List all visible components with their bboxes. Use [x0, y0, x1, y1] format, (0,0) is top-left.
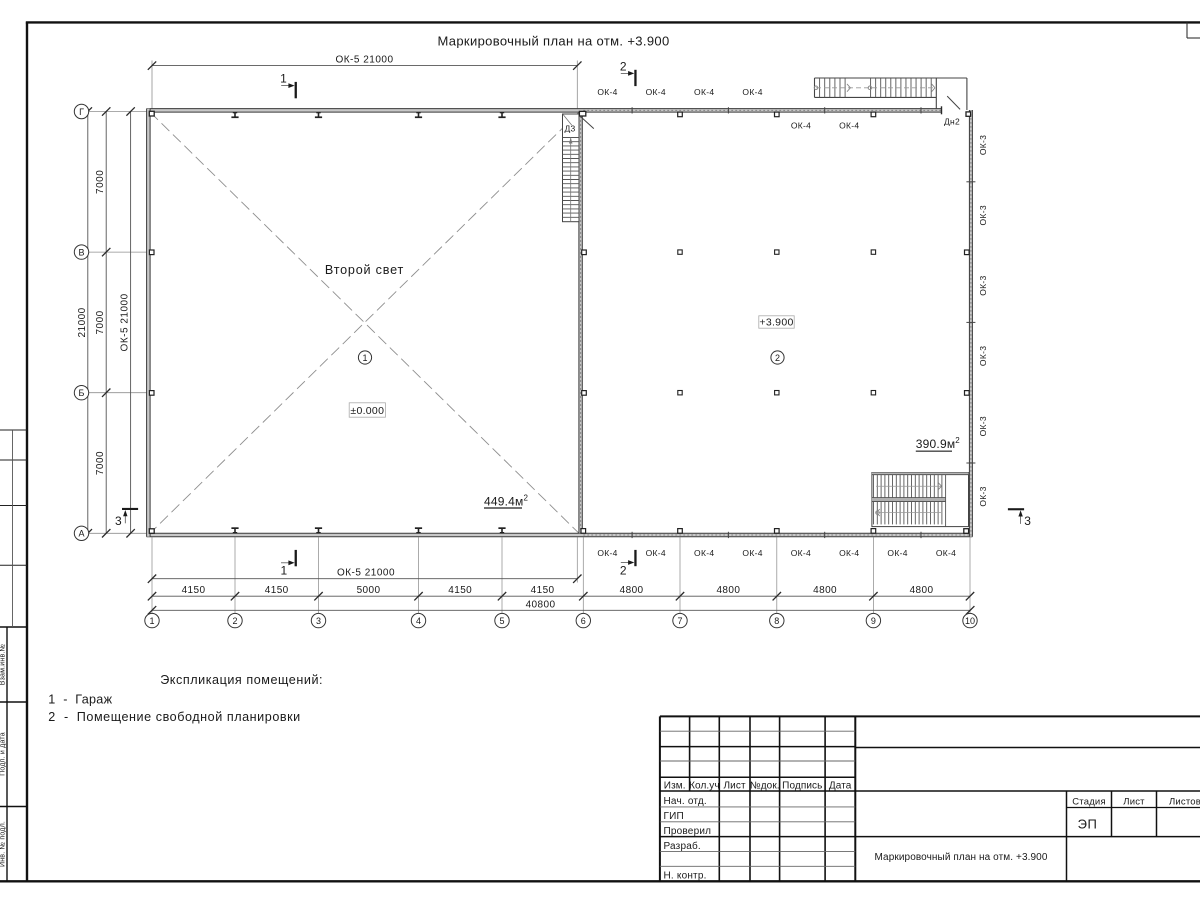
svg-text:ОК-5 21000: ОК-5 21000	[119, 293, 130, 351]
svg-text:Б: Б	[79, 388, 85, 398]
svg-text:4800: 4800	[910, 585, 934, 596]
svg-text:3: 3	[115, 514, 122, 528]
svg-text:ОК-4: ОК-4	[791, 120, 811, 130]
svg-text:3: 3	[1024, 514, 1031, 528]
svg-text:4150: 4150	[448, 585, 472, 596]
svg-text:±0.000: ±0.000	[350, 405, 384, 417]
svg-text:40800: 40800	[526, 599, 556, 610]
svg-text:ОК-4: ОК-4	[839, 120, 859, 130]
svg-text:4800: 4800	[620, 585, 644, 596]
svg-text:ОК-4: ОК-4	[646, 548, 666, 558]
svg-text:Лист: Лист	[724, 781, 746, 792]
svg-text:+3.900: +3.900	[759, 317, 793, 329]
svg-text:ОК-4: ОК-4	[597, 87, 617, 97]
svg-text:449.4м2: 449.4м2	[484, 493, 528, 508]
svg-text:№док.: №док.	[750, 781, 780, 792]
svg-text:1: 1	[149, 616, 154, 626]
svg-text:ОК-3: ОК-3	[978, 416, 988, 436]
svg-text:Н. контр.: Н. контр.	[664, 871, 707, 882]
svg-text:Взам.инв.№: Взам.инв.№	[0, 644, 7, 685]
svg-text:ОК-4: ОК-4	[742, 548, 762, 558]
svg-text:2: 2	[775, 353, 780, 363]
svg-text:3: 3	[316, 616, 321, 626]
svg-text:Д3: Д3	[565, 124, 576, 134]
svg-text:7000: 7000	[95, 310, 106, 334]
svg-text:Экспликация помещений:: Экспликация помещений:	[160, 673, 323, 687]
svg-text:Кол.уч: Кол.уч	[689, 781, 720, 792]
svg-text:ОК-4: ОК-4	[694, 548, 714, 558]
svg-text:ОК-4: ОК-4	[646, 87, 666, 97]
svg-text:1 - Гараж: 1 - Гараж	[48, 693, 112, 707]
svg-text:7: 7	[677, 616, 682, 626]
svg-text:ОК-5 21000: ОК-5 21000	[335, 54, 393, 65]
svg-text:Второй свет: Второй свет	[325, 263, 404, 277]
svg-text:ОК-3: ОК-3	[978, 486, 988, 506]
svg-text:ОК-3: ОК-3	[978, 346, 988, 366]
svg-text:Лист: Лист	[1123, 797, 1145, 808]
svg-text:ЭП: ЭП	[1078, 817, 1098, 832]
svg-text:1: 1	[362, 353, 367, 363]
svg-text:2: 2	[232, 616, 237, 626]
svg-text:ОК-5 21000: ОК-5 21000	[337, 567, 395, 578]
svg-text:2 - Помещение свободной план: 2 - Помещение свободной планировки	[48, 710, 300, 724]
svg-text:4150: 4150	[531, 585, 555, 596]
svg-text:Подп. и дата: Подп. и дата	[0, 732, 7, 776]
svg-text:1: 1	[280, 564, 287, 578]
svg-text:Нач. отд.: Нач. отд.	[664, 796, 707, 807]
svg-text:Листов: Листов	[1169, 797, 1200, 808]
svg-text:Подпись: Подпись	[782, 781, 822, 792]
svg-text:9: 9	[871, 616, 876, 626]
svg-text:ОК-3: ОК-3	[978, 275, 988, 295]
svg-text:4800: 4800	[716, 585, 740, 596]
svg-text:Дата: Дата	[829, 781, 852, 792]
svg-text:ГИП: ГИП	[664, 811, 684, 822]
svg-text:ОК-3: ОК-3	[978, 205, 988, 225]
svg-text:Изм.: Изм.	[664, 781, 686, 792]
svg-text:1: 1	[280, 71, 287, 85]
svg-text:8: 8	[774, 616, 779, 626]
svg-text:ОК-4: ОК-4	[887, 548, 907, 558]
svg-text:А: А	[78, 529, 84, 539]
svg-text:Маркировочный план на отм. +3.: Маркировочный план на отм. +3.900	[437, 33, 669, 48]
svg-text:21000: 21000	[77, 307, 88, 337]
svg-text:ОК-4: ОК-4	[742, 87, 762, 97]
svg-text:6: 6	[581, 616, 586, 626]
svg-text:4150: 4150	[182, 585, 206, 596]
svg-text:7000: 7000	[95, 451, 106, 475]
svg-text:ОК-4: ОК-4	[791, 548, 811, 558]
svg-text:4150: 4150	[265, 585, 289, 596]
svg-text:2: 2	[620, 564, 627, 578]
svg-text:5: 5	[499, 616, 504, 626]
svg-text:ОК-3: ОК-3	[978, 135, 988, 155]
svg-text:ОК-4: ОК-4	[936, 548, 956, 558]
svg-text:Дн2: Дн2	[944, 116, 960, 126]
svg-text:Проверил: Проверил	[664, 826, 712, 837]
svg-text:Инв. № подл.: Инв. № подл.	[0, 821, 7, 867]
svg-text:4: 4	[416, 616, 421, 626]
svg-text:Разраб.: Разраб.	[664, 840, 701, 852]
svg-text:2: 2	[620, 59, 627, 73]
svg-text:390.9м2: 390.9м2	[916, 436, 960, 451]
svg-text:10: 10	[965, 616, 975, 626]
svg-text:5000: 5000	[357, 585, 381, 596]
svg-text:ОК-4: ОК-4	[839, 548, 859, 558]
svg-text:Маркировочный план на отм. +3.: Маркировочный план на отм. +3.900	[875, 852, 1048, 863]
svg-text:7000: 7000	[95, 170, 106, 194]
svg-text:В: В	[78, 248, 84, 258]
svg-text:ОК-4: ОК-4	[597, 548, 617, 558]
svg-text:Стадия: Стадия	[1072, 797, 1106, 808]
svg-text:ОК-4: ОК-4	[694, 87, 714, 97]
svg-text:4800: 4800	[813, 585, 837, 596]
svg-text:Г: Г	[79, 107, 84, 117]
